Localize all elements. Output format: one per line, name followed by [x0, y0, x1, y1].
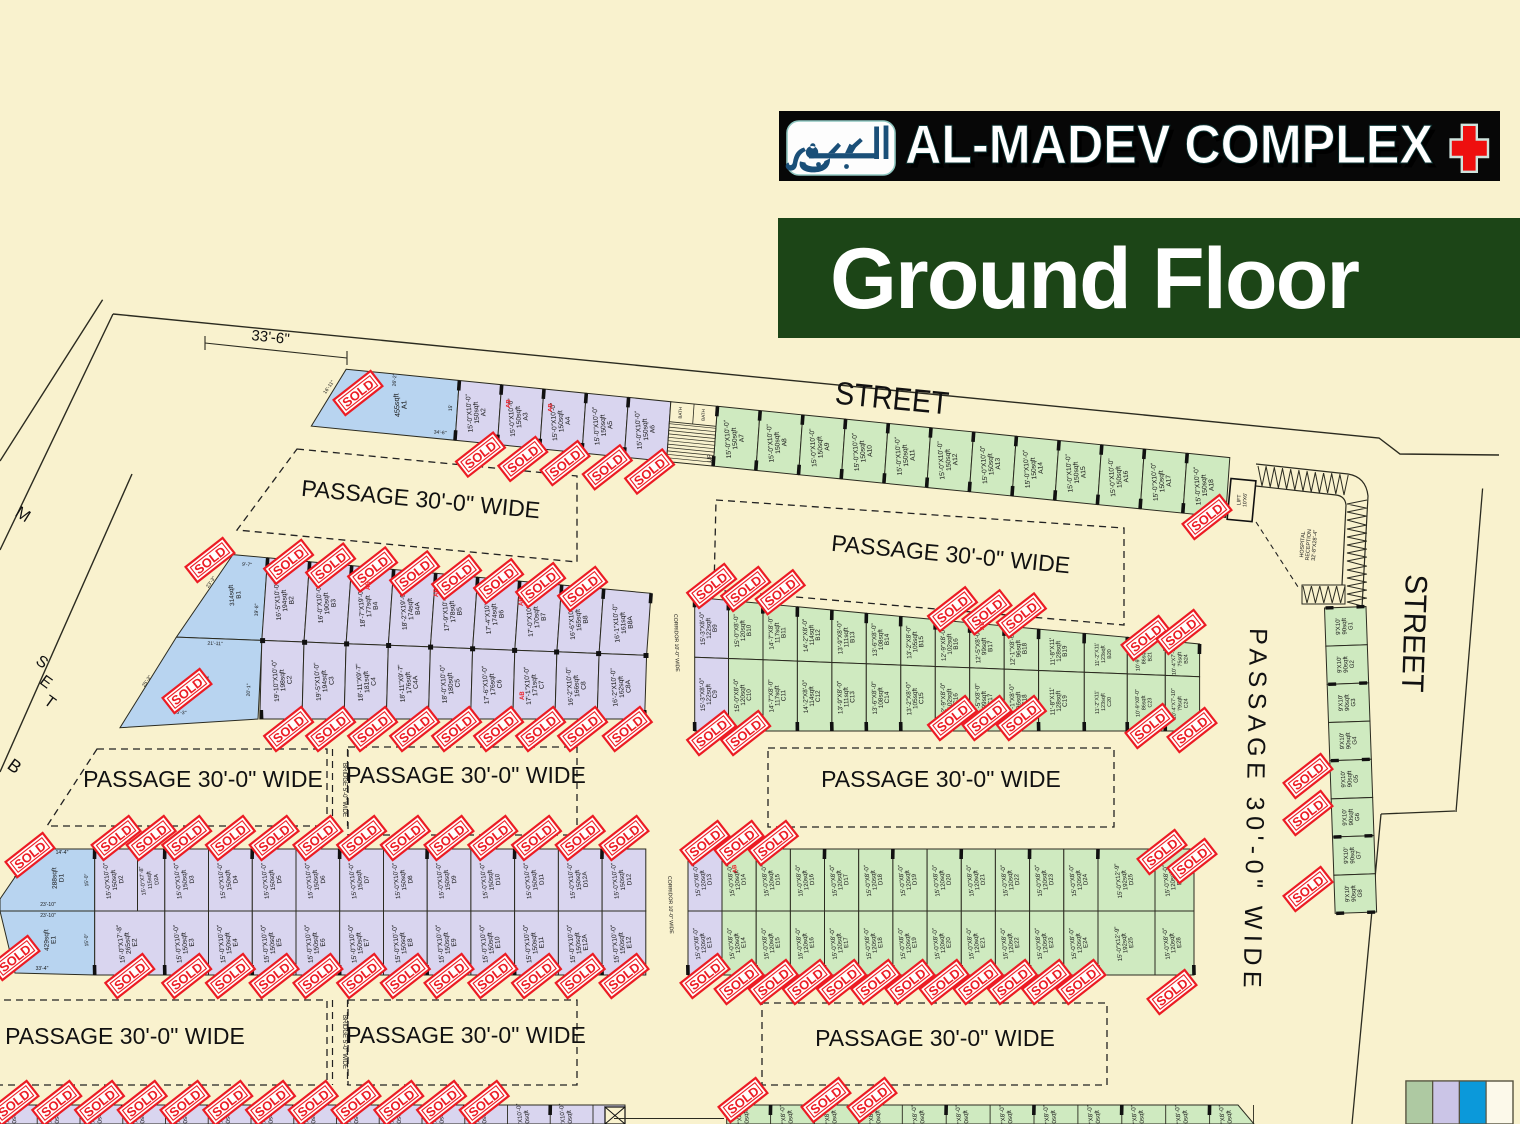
svg-text:PASSAGE 30'-0" WIDE: PASSAGE 30'-0" WIDE	[346, 762, 586, 788]
svg-text:9'-7": 9'-7"	[242, 562, 253, 569]
svg-text:PASSAGE 30'-0" WIDE: PASSAGE 30'-0" WIDE	[83, 766, 323, 792]
svg-text:34'-6": 34'-6"	[433, 429, 446, 436]
svg-text:BATH: BATH	[678, 407, 683, 419]
svg-text:AB: AB	[548, 403, 554, 413]
svg-text:15': 15'	[448, 405, 454, 412]
svg-text:STREET: STREET	[1395, 574, 1434, 693]
svg-text:19'-8": 19'-8"	[254, 603, 260, 616]
svg-text:HOSPITALRECEPTION32'-8"X28'-4": HOSPITALRECEPTION32'-8"X28'-4"	[1299, 529, 1319, 562]
svg-text:23'-10": 23'-10"	[40, 902, 56, 908]
svg-text:15'-0": 15'-0"	[84, 933, 90, 946]
svg-text:15'-0": 15'-0"	[84, 873, 90, 886]
svg-text:PASSAGE 30'-0" WIDE: PASSAGE 30'-0" WIDE	[821, 766, 1061, 792]
svg-text:PASSAGE 30'-0" WIDE: PASSAGE 30'-0" WIDE	[346, 1022, 586, 1048]
svg-text:BATH: BATH	[701, 409, 706, 421]
svg-text:AB: AB	[732, 864, 739, 874]
svg-text:AB: AB	[520, 691, 526, 700]
svg-text:AB: AB	[434, 588, 440, 597]
svg-text:33'-4": 33'-4"	[36, 966, 49, 972]
svg-text:14'-4": 14'-4"	[56, 850, 69, 856]
svg-text:Ground Floor: Ground Floor	[830, 231, 1360, 327]
svg-text:AB: AB	[506, 399, 512, 409]
svg-text:AB: AB	[519, 597, 525, 606]
svg-text:26'-2": 26'-2"	[392, 373, 398, 386]
svg-text:20'-1": 20'-1"	[246, 683, 252, 696]
svg-text:PASSAGE 30'-0" WIDE: PASSAGE 30'-0" WIDE	[815, 1025, 1055, 1051]
svg-text:23'-10": 23'-10"	[40, 913, 56, 919]
svg-text:AB: AB	[366, 581, 372, 590]
svg-text:AL-MADEV COMPLEX: AL-MADEV COMPLEX	[905, 113, 1433, 175]
svg-text:AB: AB	[980, 621, 986, 631]
svg-text:21'-11": 21'-11"	[207, 641, 223, 648]
svg-text:LIFT10'X6': LIFT10'X6'	[1236, 493, 1248, 508]
svg-text:PASSAGE 30'-0" WIDE: PASSAGE 30'-0" WIDE	[5, 1023, 245, 1049]
